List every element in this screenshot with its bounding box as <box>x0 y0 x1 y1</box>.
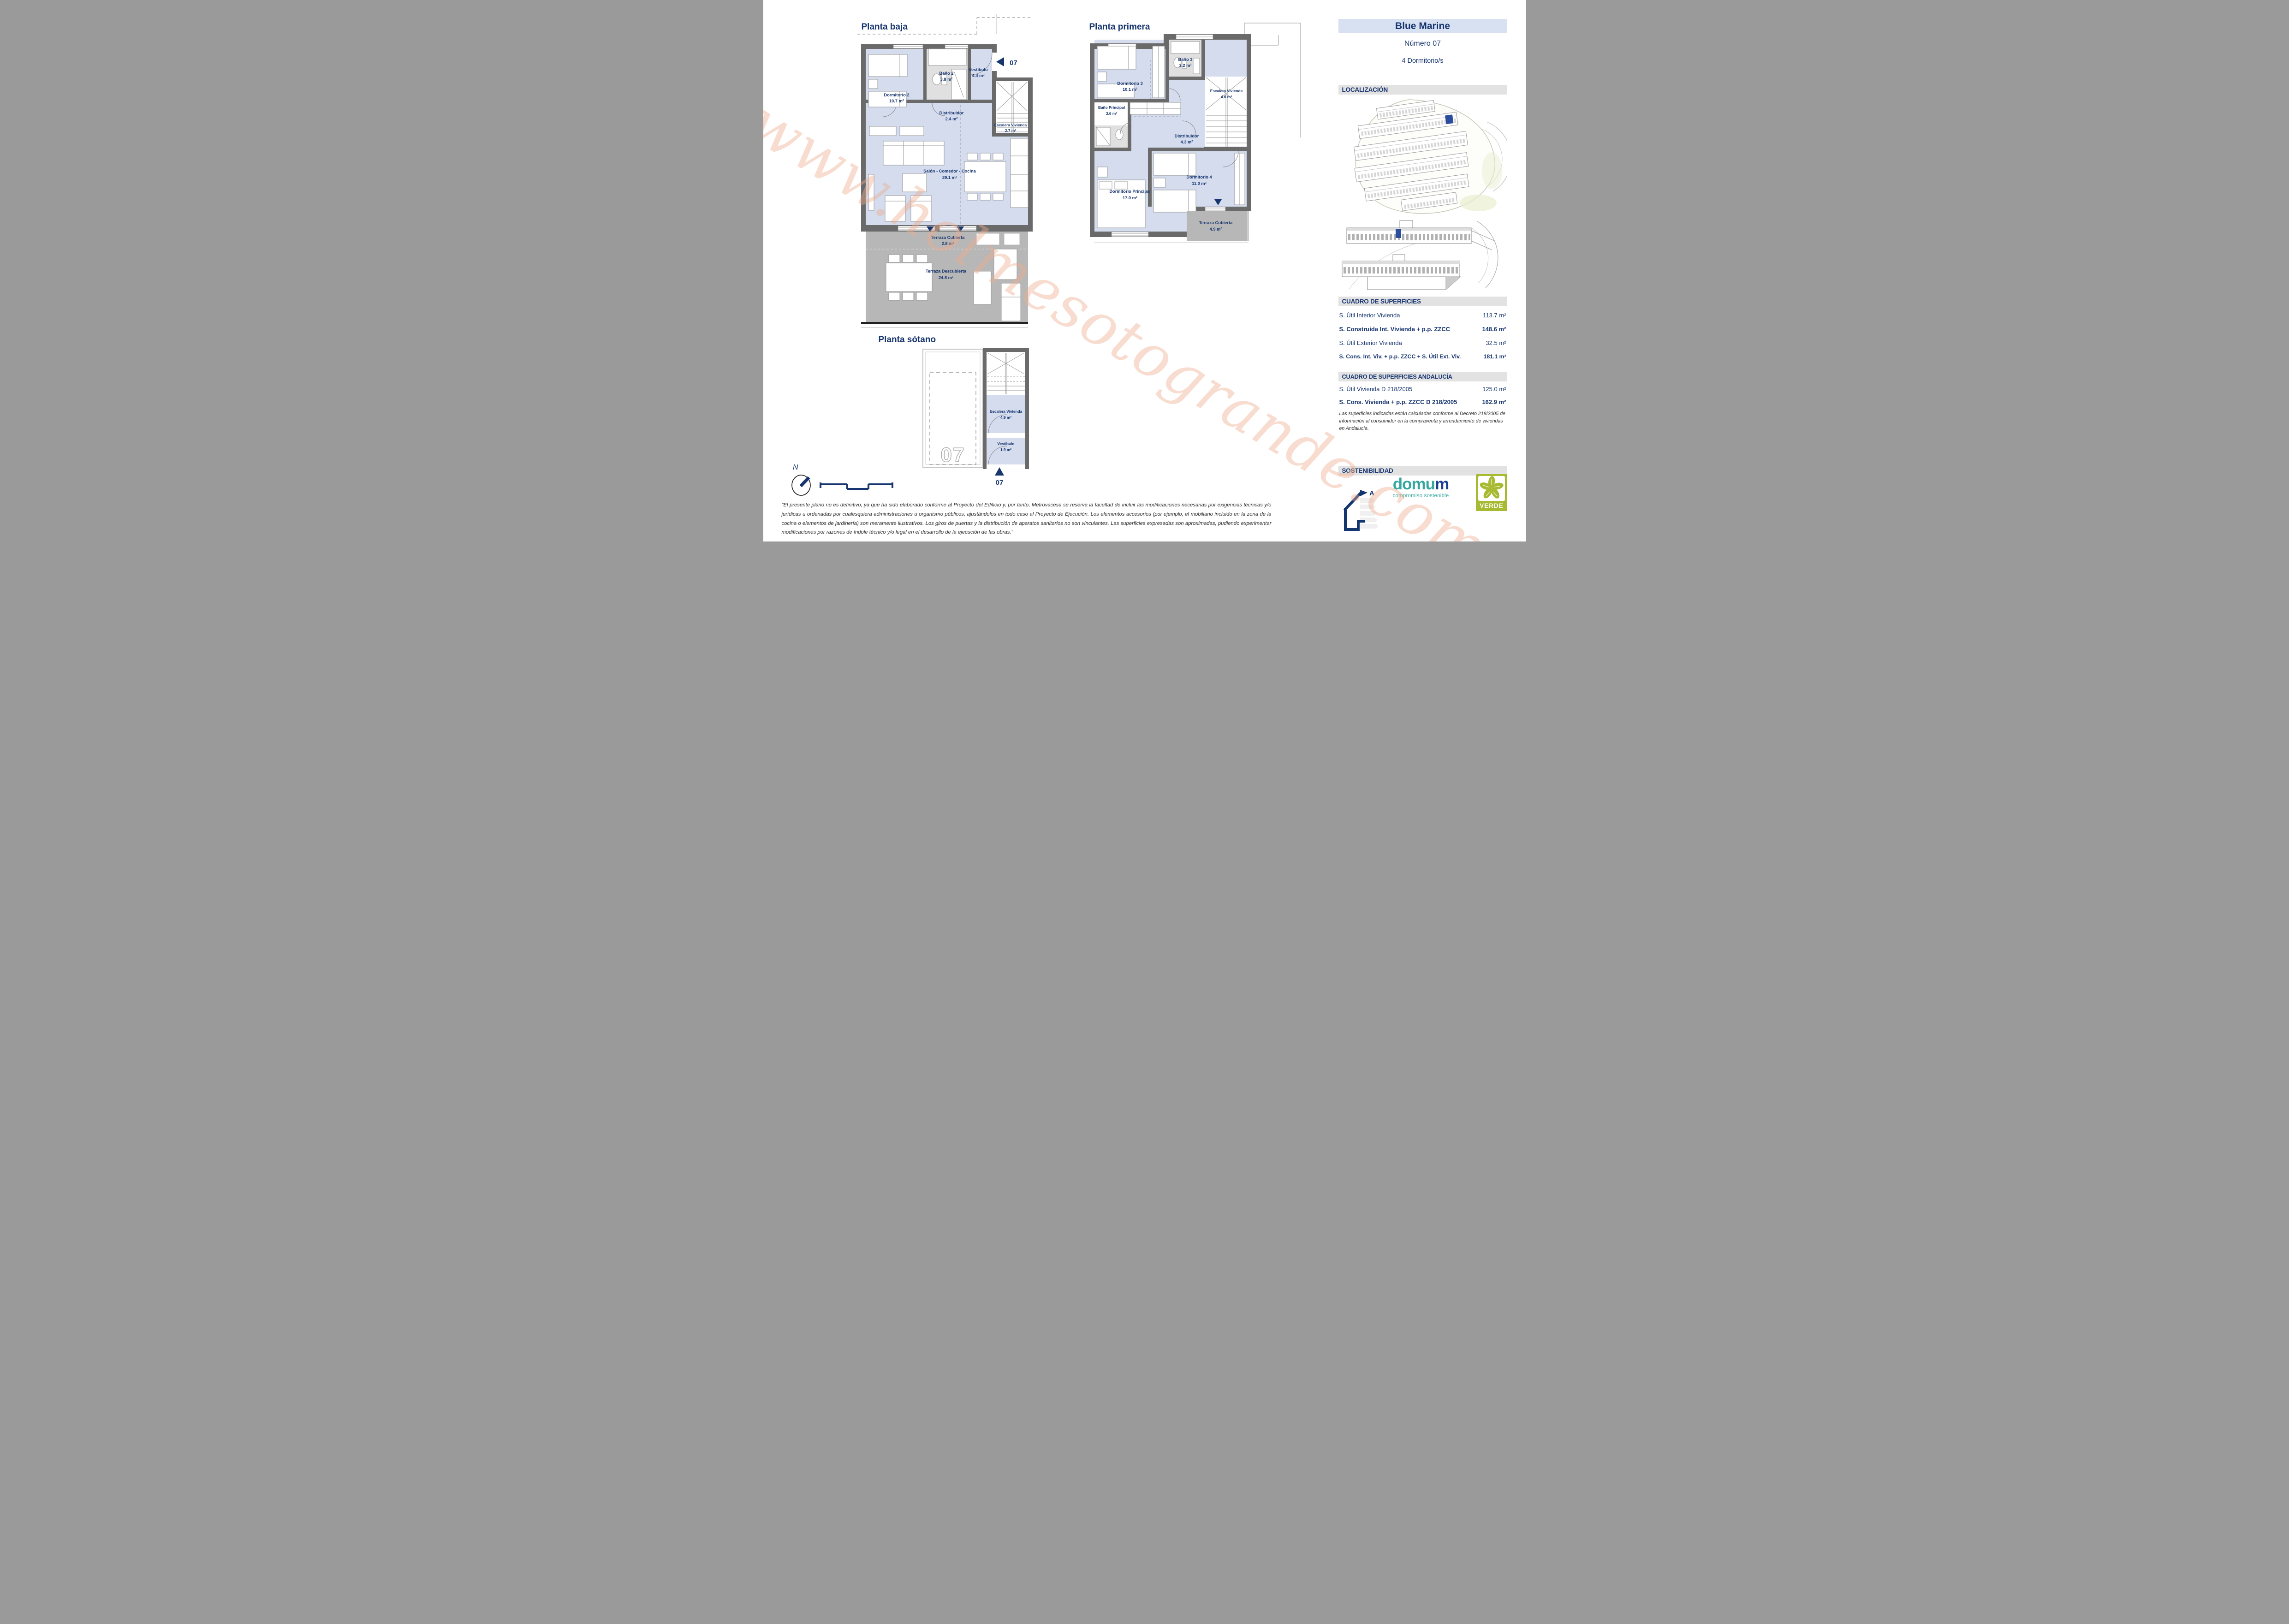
table-row: S. Cons. Int. Viv. + p.p. ZZCC + S. Útil… <box>1338 353 1507 364</box>
room-label: Escalera Vivienda <box>1210 89 1243 93</box>
room-label: Terraza Descubierta <box>925 269 966 274</box>
planta-baja-drawing: 07 Dormitorio 2 10.7 m² Baño 2 3.8 m² Ve… <box>857 41 1037 329</box>
svg-text:4.3 m²: 4.3 m² <box>1180 140 1193 144</box>
scale-bar <box>818 479 896 494</box>
domum-text-navy: m <box>1435 475 1449 493</box>
svg-text:10.7 m²: 10.7 m² <box>889 99 904 103</box>
room-label: Escalera Vivienda <box>989 409 1022 414</box>
table-row: S. Útil Vivienda D 218/2005 125.0 m² <box>1338 386 1507 397</box>
svg-text:3.2 m²: 3.2 m² <box>1179 63 1191 68</box>
table-row: S. Útil Interior Vivienda 113.7 m² <box>1338 312 1507 323</box>
domum-text-teal: domu <box>1393 475 1435 493</box>
lot-boundary-lines <box>856 14 1049 42</box>
verde-logo: VERDE <box>1476 474 1507 511</box>
energy-rating-icon: A <box>1339 482 1381 531</box>
svg-text:2.7 m²: 2.7 m² <box>1005 128 1016 133</box>
room-label: Baño 3 <box>1178 57 1192 62</box>
superficies-andalucia-header: CUADRO DE SUPERFICIES ANDALUCÍA <box>1338 372 1507 381</box>
bedroom-count: 4 Dormitorio/s <box>1338 57 1507 65</box>
svg-text:4.6 m²: 4.6 m² <box>1221 95 1232 99</box>
localizacion-header: LOCALIZACIÓN <box>1338 85 1507 95</box>
domum-tagline: compromiso sostenible <box>1384 493 1458 499</box>
table-row: S. Construida Int. Vivienda + p.p. ZZCC … <box>1338 326 1507 337</box>
planta-sotano-drawing: 07 07 Escalera Vivienda 4.9 m² Vestíbulo… <box>916 348 1068 489</box>
room-label: Baño Principal <box>1098 105 1124 110</box>
highlighted-unit <box>1396 229 1401 238</box>
svg-text:4.4 m²: 4.4 m² <box>972 73 984 78</box>
verde-label: VERDE <box>1480 502 1504 509</box>
superficies-header: CUADRO DE SUPERFICIES <box>1338 297 1507 306</box>
garage-number-outline: 07 <box>940 444 965 466</box>
table-row: S. Útil Exterior Vivienda 32.5 m² <box>1338 339 1507 351</box>
svg-text:1.9 m²: 1.9 m² <box>1000 447 1011 452</box>
room-label: Salón - Comedor - Cocina <box>923 169 976 173</box>
room-label: Terraza Cubierta <box>1199 220 1233 225</box>
svg-text:24.8 m²: 24.8 m² <box>938 275 953 280</box>
energy-letter: A <box>1369 489 1374 497</box>
domum-logo: domum compromiso sostenible <box>1384 476 1458 499</box>
energy-scale-bars <box>1360 498 1379 529</box>
decreto-note: Las superficies indicadas están calculad… <box>1339 410 1507 433</box>
unit-marker: 07 <box>995 479 1003 487</box>
room-label: Vestíbulo <box>997 441 1014 446</box>
table-row: S. Cons. Vivienda + p.p. ZZCC D 218/2005… <box>1338 399 1507 410</box>
location-map-aerial <box>1340 97 1507 216</box>
svg-text:4.9 m²: 4.9 m² <box>1209 227 1222 232</box>
svg-text:2.4 m²: 2.4 m² <box>945 117 957 121</box>
location-map-siteplan <box>1340 218 1507 294</box>
svg-text:17.0 m²: 17.0 m² <box>1122 196 1137 200</box>
room-label: Dormitorio 2 <box>884 93 909 97</box>
svg-text:2.8 m²: 2.8 m² <box>941 241 954 246</box>
room-label: Dormitorio 4 <box>1186 175 1212 179</box>
svg-text:11.0 m²: 11.0 m² <box>1192 181 1207 186</box>
north-label: N <box>793 464 798 471</box>
svg-text:3.6 m²: 3.6 m² <box>1106 111 1117 116</box>
planta-primera-title: Planta primera <box>1089 22 1150 32</box>
planta-primera-drawing: Dormitorio 3 10.1 m² Baño 3 3.2 m² Escal… <box>1086 32 1280 258</box>
legal-disclaimer: "El presente plano no es definitivo, ya … <box>782 501 1272 537</box>
room-label: Dormitorio Principal <box>1109 189 1150 194</box>
svg-text:10.1 m²: 10.1 m² <box>1122 87 1137 92</box>
svg-text:29.1 m²: 29.1 m² <box>942 175 957 180</box>
planta-sotano-title: Planta sótano <box>879 335 936 345</box>
room-label: Dormitorio 3 <box>1117 81 1142 86</box>
room-label: Distribuidor <box>939 111 963 115</box>
unit-marker: 07 <box>1010 59 1017 67</box>
plan-sheet: www.holmesotogrande.com Planta baja <box>763 0 1526 541</box>
room-label: Distribuidor <box>1174 134 1199 138</box>
svg-text:4.9 m²: 4.9 m² <box>1000 415 1011 420</box>
room-label: Vestíbulo <box>969 67 988 72</box>
svg-text:3.8 m²: 3.8 m² <box>940 77 952 82</box>
room-label: Escalera Vivienda <box>994 123 1027 127</box>
unit-number: Número 07 <box>1338 40 1507 48</box>
project-title: Blue Marine <box>1338 19 1507 33</box>
room-label: Baño 2 <box>939 71 953 76</box>
room-label: Terraza Cubierta <box>931 235 965 240</box>
highlighted-unit <box>1445 114 1453 124</box>
